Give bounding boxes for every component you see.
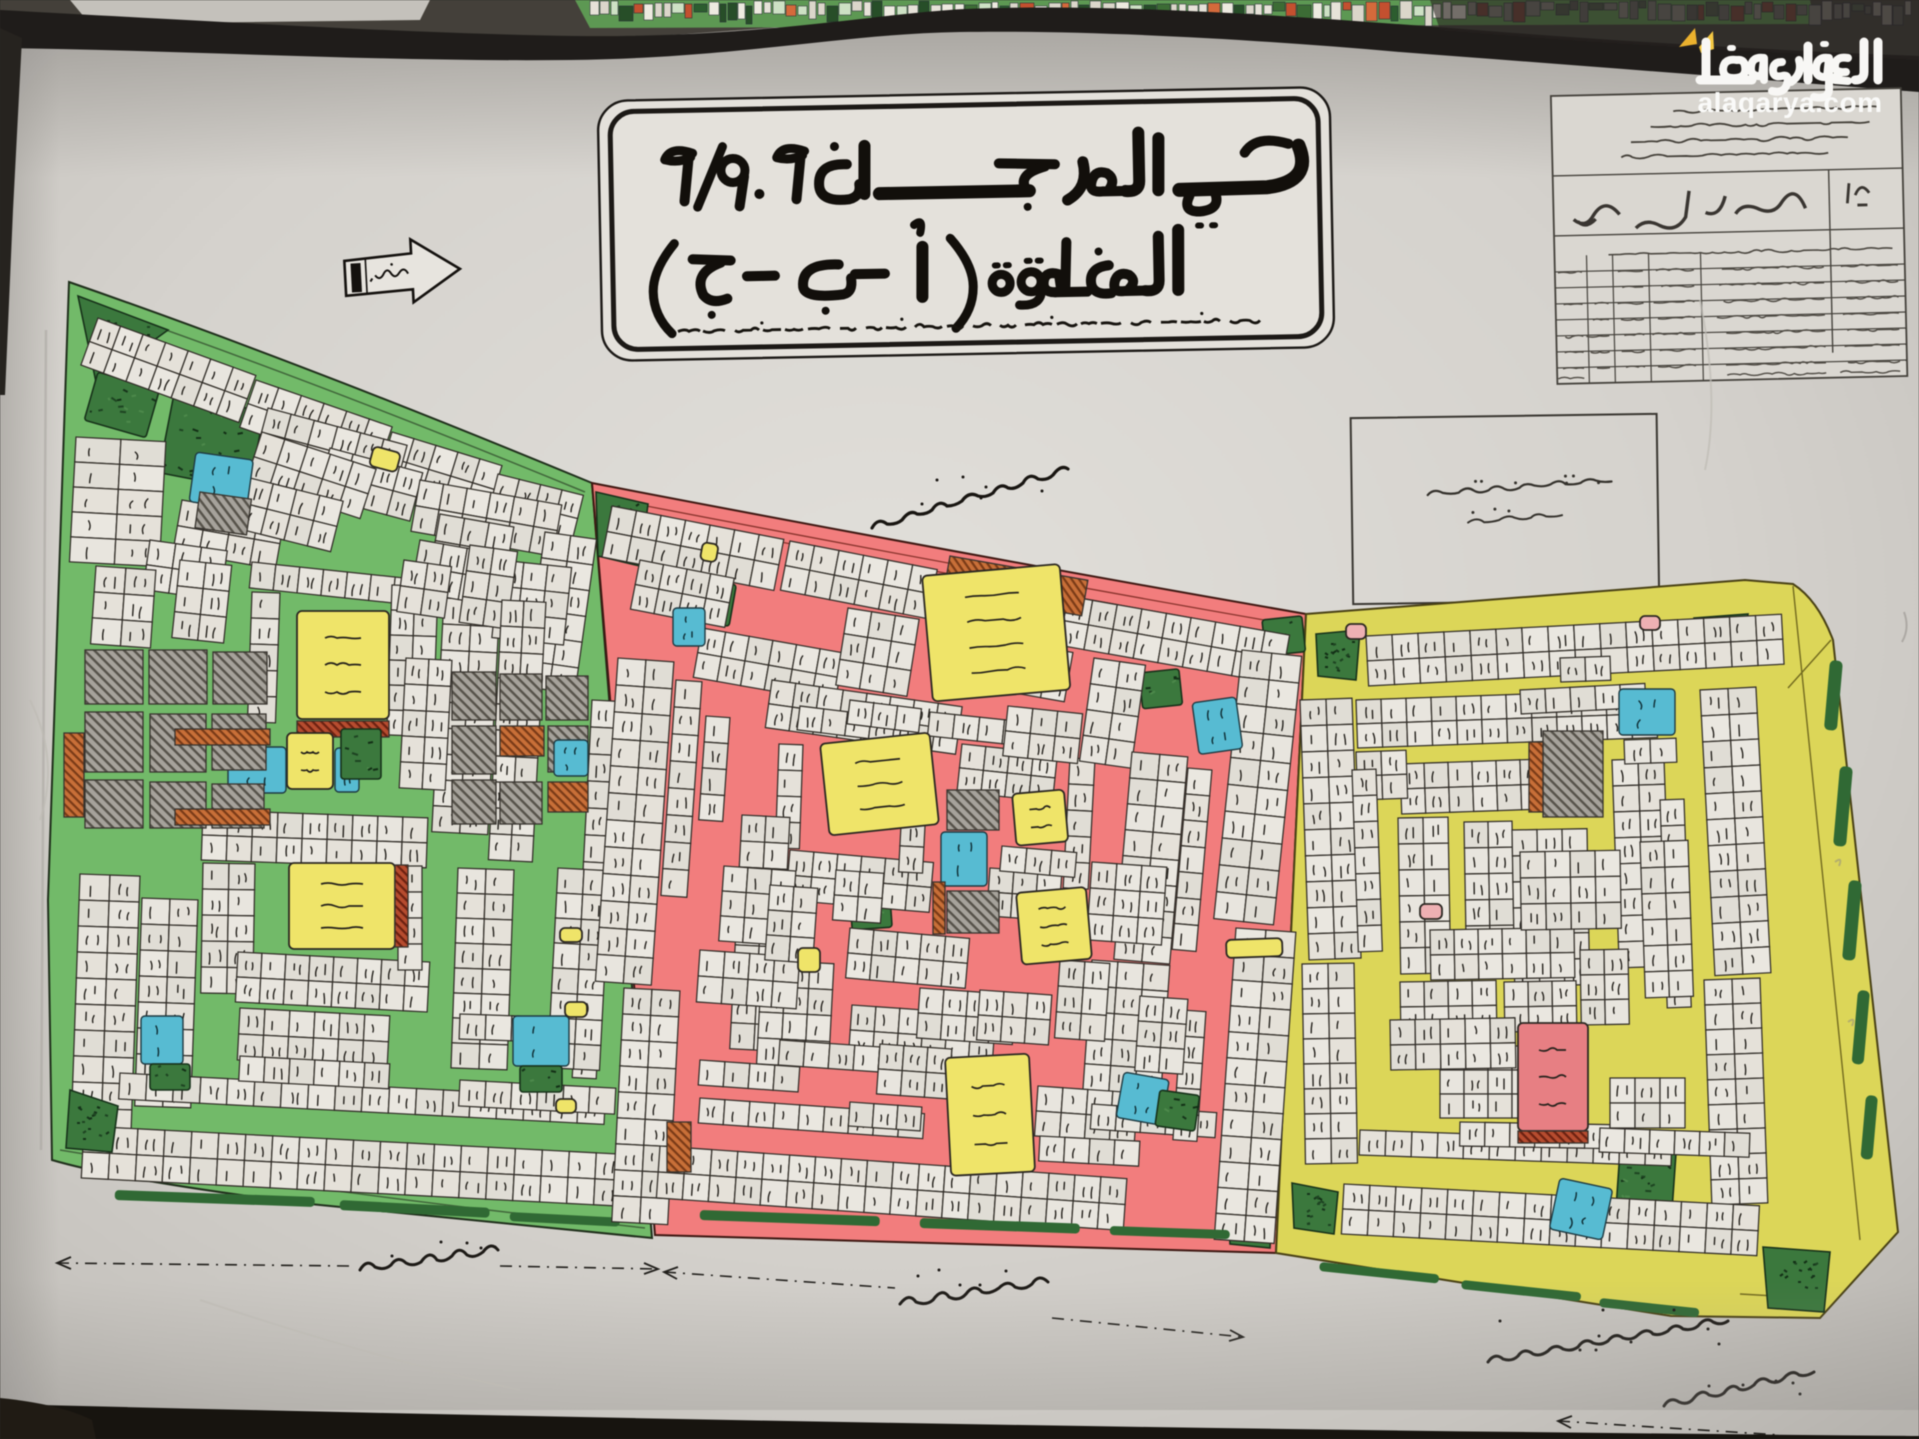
svg-text:alaqarya.com: alaqarya.com (1698, 87, 1883, 118)
